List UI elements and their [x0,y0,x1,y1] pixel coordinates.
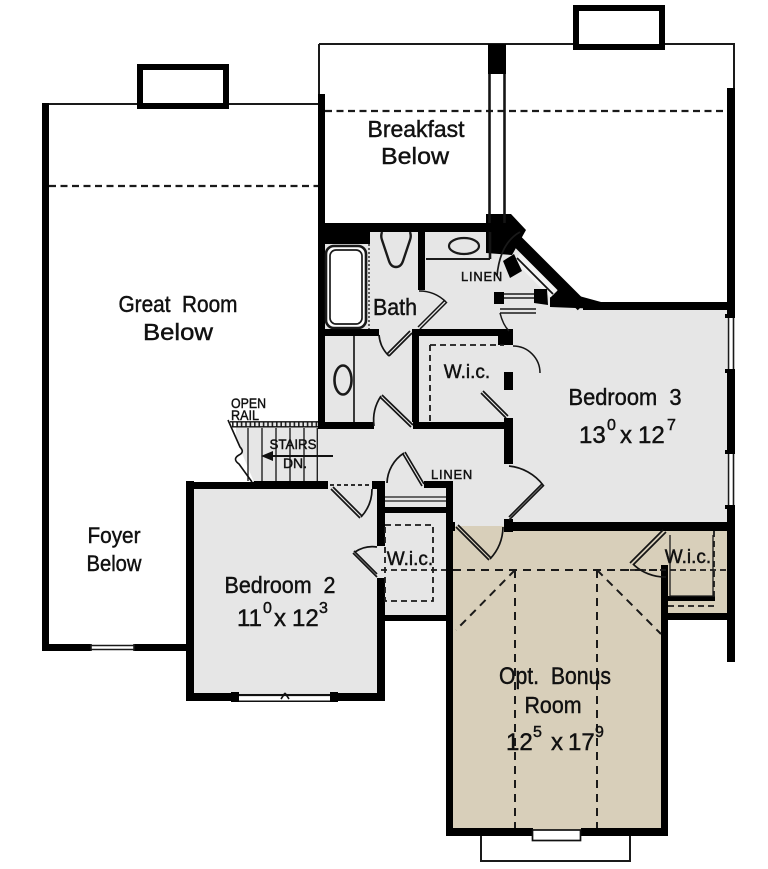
svg-text:Great Room: Great Room [119,291,238,317]
svg-text:Foyer: Foyer [88,523,141,548]
svg-text:Bedroom 3: Bedroom 3 [569,384,682,410]
svg-text:Room: Room [525,692,582,718]
svg-text:W.i.c.: W.i.c. [387,549,433,570]
svg-text:Breakfast: Breakfast [368,116,466,142]
svg-text:RAIL: RAIL [231,407,259,423]
svg-text:Below: Below [87,551,142,576]
svg-text:DN.: DN. [283,455,307,471]
svg-text:Opt. Bonus: Opt. Bonus [499,663,611,690]
svg-text:Bedroom 2: Bedroom 2 [225,572,336,598]
svg-text:W.i.c.: W.i.c. [665,547,711,568]
svg-text:STAIRS: STAIRS [270,436,317,452]
svg-text:W.i.c.: W.i.c. [444,362,490,383]
svg-text:110x123: 110x123 [237,600,328,632]
svg-text:125x179: 125x179 [506,724,604,756]
svg-text:LINEN: LINEN [461,269,503,284]
svg-text:Bath: Bath [373,294,417,320]
svg-text:130x127: 130x127 [579,417,676,449]
svg-text:Below: Below [143,319,213,345]
svg-text:LINEN: LINEN [431,467,473,482]
svg-text:Below: Below [381,143,449,169]
